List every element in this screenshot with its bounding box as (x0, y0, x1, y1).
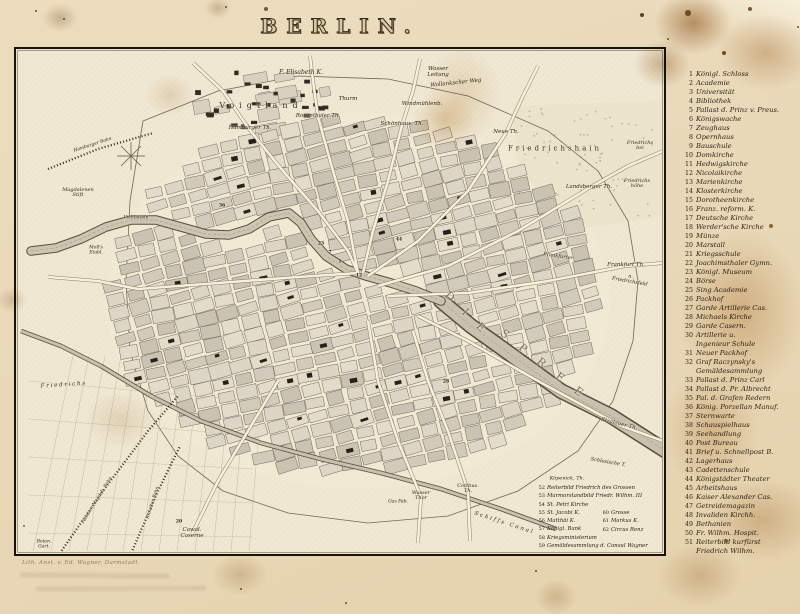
legend-item: 27Garde Artillerie Cas. (681, 304, 798, 313)
legend-item: 29Garde Casern. (681, 322, 798, 331)
map-label: Gas Fab. (388, 501, 408, 506)
atlas-page: { "page": { "title": "BERLIN.", "imprint… (0, 0, 800, 614)
legend-item: 60Grosse (599, 509, 662, 517)
map-plate: F. Elisabeth K.Wollankscher WegThurmWass… (14, 47, 666, 556)
legend-item: 44Königstädter Theater (681, 475, 798, 484)
page-curl (650, 0, 800, 60)
map-label: Landsberger Th. (566, 185, 612, 191)
legend-item: 15Dorotheenkirche (681, 196, 798, 205)
map-label: Stralauer Th. (600, 418, 637, 433)
legend-item: 8Opernhaus (681, 133, 798, 142)
map-label: Rosenthaler Th. (296, 114, 340, 120)
legend-item: 46Kaiser Alexander Cas. (681, 493, 798, 502)
map-label: Hamburger Bahn (73, 138, 112, 155)
map-label: Cottbus. Th. (457, 484, 478, 495)
map-label: 1 (338, 261, 341, 266)
legend-item: 4Bibliothek (681, 97, 798, 106)
map-label: Hamburger Th. (228, 126, 271, 132)
map-label: 36 (219, 205, 225, 210)
map-label: 12 (356, 275, 362, 280)
map-label: Voigtland (219, 102, 302, 110)
map-label: Windmühlenb. (402, 102, 443, 108)
legend-item: 45Arbeitshaus (681, 484, 798, 493)
inset-legend: 52Reiterbild Friedrich des Grossen53Marm… (535, 484, 662, 552)
legend-item: 33Pallast d. Prinz Carl (681, 376, 798, 385)
legend-item: 34Pallast d. Pr. Albrecht (681, 385, 798, 394)
map-label: S P R E E (498, 327, 590, 402)
legend-item: 11Hedwigskirche (681, 160, 798, 169)
legend-item: 5Pallast d. Prinz v. Preus. (681, 106, 798, 115)
legend-item: 17Deutsche Kirche (681, 214, 798, 223)
map-label: Wasser Thor (412, 491, 430, 502)
legend-item: 40Post Bureau (681, 439, 798, 448)
legend-item: 23Königl. Museum (681, 268, 798, 277)
legend-item: 39Seehandlung (681, 430, 798, 439)
legend-item: 13Marienkirche (681, 178, 798, 187)
legend-item: 10Domkirche (681, 151, 798, 160)
legend-item: 36König. Porzellan Manuf. (681, 403, 798, 412)
legend-item: 26Packhof (681, 295, 798, 304)
map-label: Schlesische T. (590, 457, 626, 468)
map-label: Magdalenen Stift (62, 188, 93, 199)
map-label: Moll's Etabl. (89, 246, 103, 255)
legend-item: 9Bauschule (681, 142, 798, 151)
map-label: Friedrichs bei (627, 141, 653, 152)
map-label: 20 (176, 521, 182, 526)
legend-item: 12Nicolaikirche (681, 169, 798, 178)
ghost-offset-mark (20, 572, 170, 578)
legend-item: 59Gemäldesammlung d. Consul Wagner (535, 542, 662, 550)
legend-item: 54St. Petri Kirche (535, 501, 662, 509)
map-canvas: F. Elisabeth K.Wollankscher WegThurmWass… (18, 51, 662, 552)
legend-item: 6Königswache (681, 115, 798, 124)
legend-item: 58Kriegsministerium (535, 534, 662, 542)
legend-item: 1Königl. Schloss (681, 70, 798, 79)
legend-item: 31Neuer Packhof (681, 349, 798, 358)
legend-item: 21Kriegsschule (681, 250, 798, 259)
map-labels-layer: F. Elisabeth K.Wollankscher WegThurmWass… (18, 51, 662, 552)
legend-item: 51Reiterbild kurfürst Friedrich Wilhm. (681, 538, 798, 556)
map-title: BERLIN. (14, 14, 666, 38)
legend-item: 52Reiterbild Friedrich des Grossen (535, 484, 662, 492)
inset-legend-col2: 60Grosse61Markus K.62Circus Renz (599, 509, 662, 534)
legend-item: 18Werder'sche Kirche (681, 223, 798, 232)
legend-item: 35Pal. d. Grafen Redern (681, 394, 798, 403)
map-label: Schönhaus. Th. (381, 122, 424, 128)
map-label: 23 (318, 243, 324, 248)
legend-item: 48Invaliden Kirchh. (681, 511, 798, 520)
legend-item: 49Bethanien (681, 520, 798, 529)
legend-item: 38Schauspielhaus (681, 421, 798, 430)
legend-item: 30Artillerie u. Ingenieur Schule (681, 331, 798, 349)
map-label: Anhalter Bahn (147, 487, 162, 520)
map-label: 44 (396, 239, 402, 244)
map-label: Thurm (339, 97, 358, 103)
legend-item: 61Markus K. (599, 517, 662, 525)
legend-item: 50Fr. Wilhm. Hospit. (681, 529, 798, 538)
legend-item: 7Zeughaus (681, 124, 798, 133)
legend-item: 28Michaels Kirche (681, 313, 798, 322)
legend-item: 47Getreidemagazin (681, 502, 798, 511)
map-label: Viehbassin (124, 217, 149, 222)
map-label: Botan. Gart. (37, 540, 52, 549)
legend-item: 19Münze (681, 232, 798, 241)
legend-item: 2Academie (681, 79, 798, 88)
map-label: D I E (442, 289, 491, 338)
legend-item: 37Sternwarte (681, 412, 798, 421)
map-label: Wollankscher Weg (430, 78, 482, 89)
legend-list: 1Königl. Schloss2Academie3Universität4Bi… (681, 70, 798, 556)
map-label: 7 (328, 252, 331, 257)
legend-item: 62Circus Renz (599, 526, 662, 534)
map-label: F. Elisabeth K. (279, 70, 323, 76)
ghost-offset-mark (36, 586, 206, 592)
imprint: Lith. Anst. v. Ed. Wagner, Darmstadt. (22, 560, 140, 566)
map-label: 28 (443, 381, 449, 386)
map-label: Friedrichs höhe (624, 179, 650, 190)
map-label: F r i e d r i c h s (41, 382, 86, 391)
legend-item: 14Klosterkirche (681, 187, 798, 196)
map-label: Neue Th. (493, 130, 519, 136)
map-label: n. Friedrichsfeld (611, 272, 648, 289)
legend-item: 32Graf Raczynsky's Gemäldesammlung (681, 358, 798, 376)
map-label: Frankfurter (543, 252, 573, 261)
map-label: Schiffs Canal (473, 512, 535, 537)
legend-item: 22Joachimsthaler Gymn. (681, 259, 798, 268)
foxing-specks (35, 10, 37, 12)
map-label: Frankfurt Th. (607, 263, 645, 269)
legend-item: 16Franz. reform. K. (681, 205, 798, 214)
map-label: Friedrichshain (508, 145, 602, 152)
legend-item: 41Brief u. Schnellpost B. (681, 448, 798, 457)
map-label: Potsdam Magdeb. Bahn (82, 477, 115, 525)
legend-item: 20Marstall (681, 241, 798, 250)
map-label: Köpenick. Th. (550, 476, 585, 481)
legend-item: 25Sing Academie (681, 286, 798, 295)
legend-item: 24Börse (681, 277, 798, 286)
legend-item: 43Cadettenschule (681, 466, 798, 475)
legend-item: 3Universität (681, 88, 798, 97)
map-label: Wasser Leitung (427, 67, 448, 79)
legend-item: 42Lagerhaus (681, 457, 798, 466)
map-label: Cawal. Caserne (181, 528, 204, 540)
legend-item: 53Marmorstandbild Friedr. Wilhm. III (535, 492, 662, 500)
